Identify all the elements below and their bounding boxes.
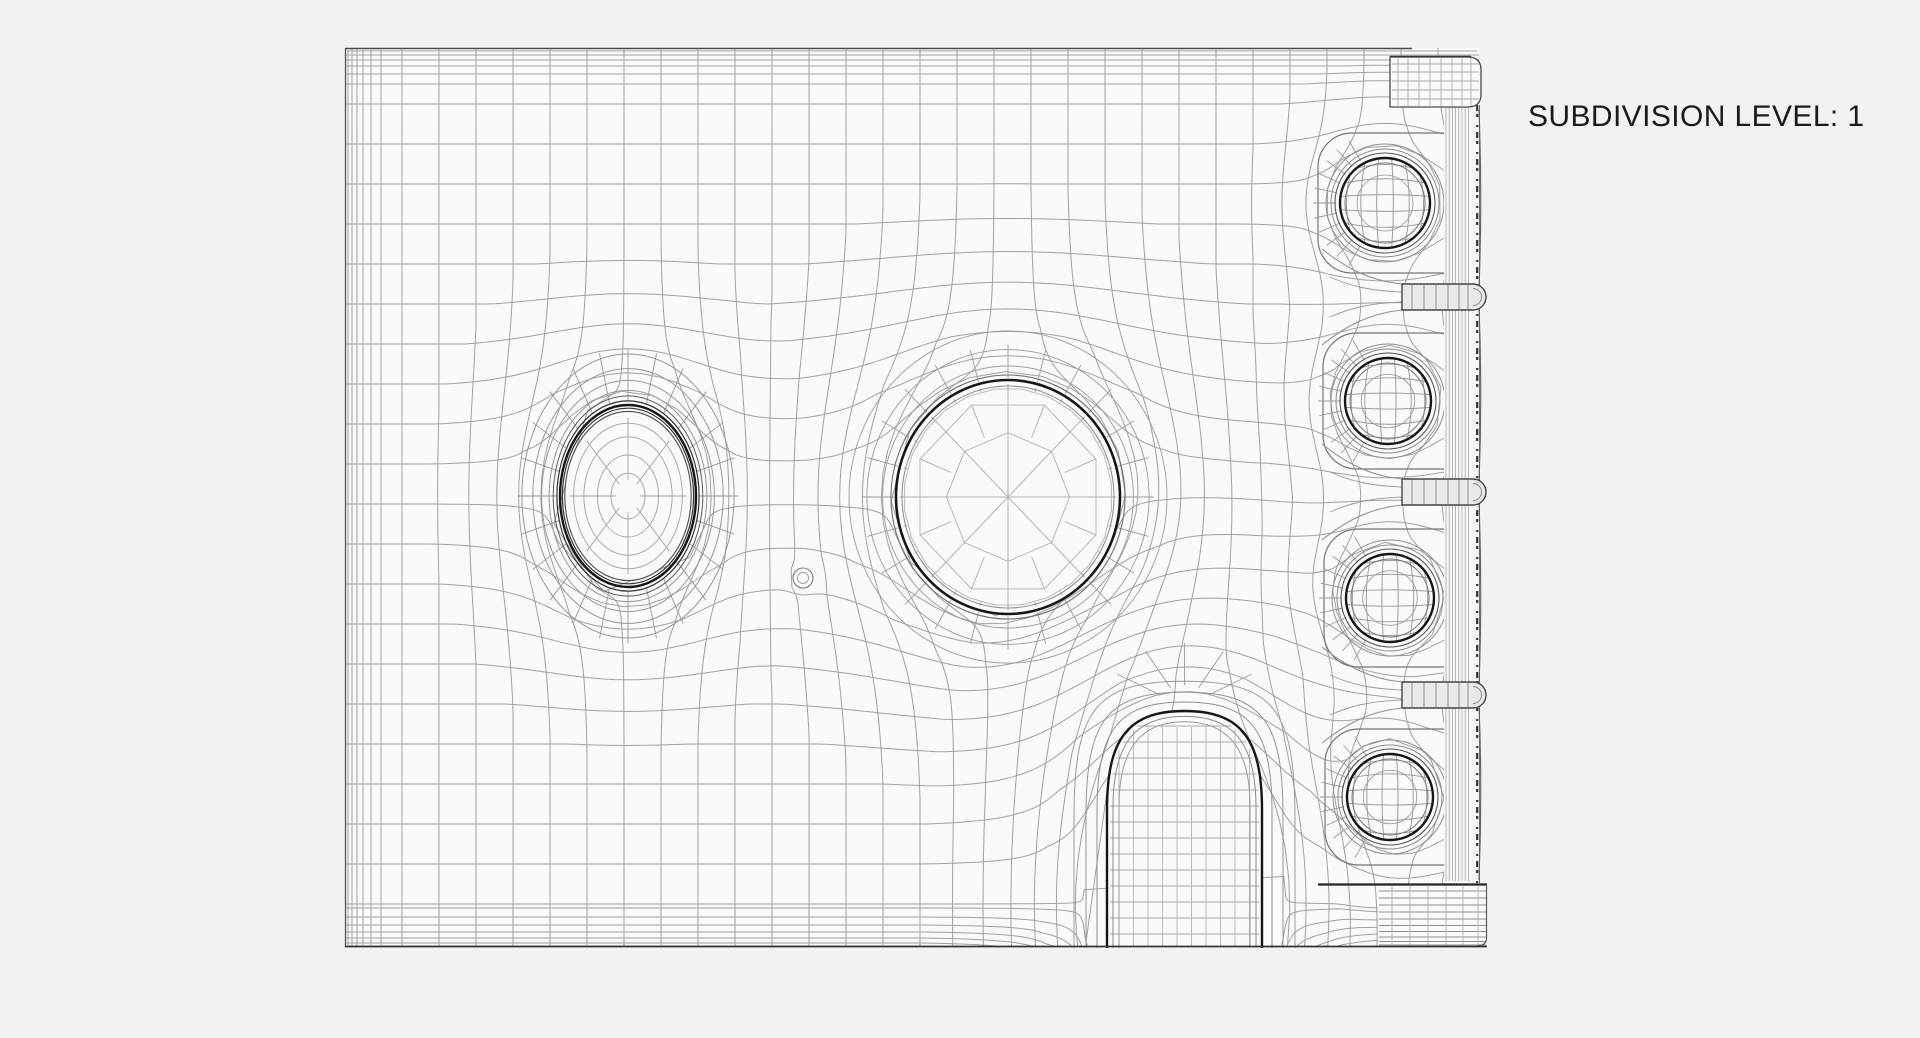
mesh-wireframe-svg: [0, 0, 1920, 1038]
render-page: { "label": { "text": "SUBDIVISION LEVEL:…: [0, 0, 1920, 1038]
wireframe-viewport: SUBDIVISION LEVEL: 1: [0, 0, 1920, 1038]
subdivision-level-label: SUBDIVISION LEVEL: 1: [1528, 100, 1888, 140]
